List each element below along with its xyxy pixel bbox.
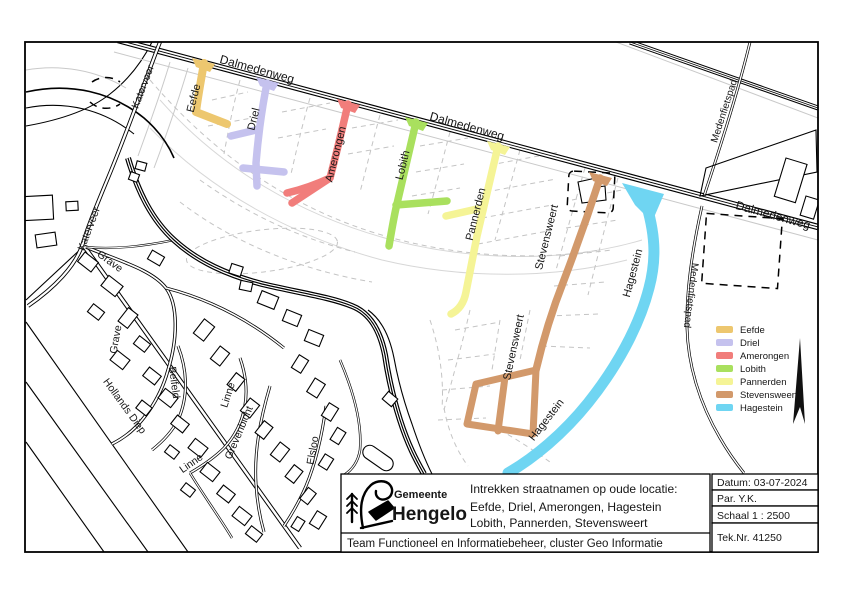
title-block-footer: Team Functioneel en Informatiebeheer, cl… [347, 538, 663, 550]
legend-label-amerongen: Amerongen [740, 351, 789, 362]
logo-hengelo-text: Hengelo [392, 504, 467, 525]
title-line-1: Intrekken straatnamen op oude locatie: [470, 482, 677, 496]
legend-label-pannerden: Pannerden [740, 377, 786, 388]
legend-label-hagestein: Hagestein [740, 403, 783, 414]
title-line-3: Lobith, Pannerden, Stevensweert [470, 516, 648, 530]
teknr-field: Tek.Nr. 41250 [717, 532, 782, 544]
map-drawing-page: Dalmedenweg Dalmedenweg Dalmedenweg Kate… [0, 0, 842, 595]
legend-label-eefde: Eefde [740, 325, 765, 336]
paraaf-field: Par. Y.K. [717, 493, 757, 505]
title-line-2: Eefde, Driel, Amerongen, Hagestein [470, 500, 661, 514]
title-block: Gemeente Hengelo Intrekken straatnamen o… [341, 474, 818, 552]
legend-label-stevensweert: Stevensweert [740, 390, 798, 401]
legend-label-driel: Driel [740, 338, 760, 349]
legend-swatch-hagestein [716, 404, 733, 411]
map-canvas: Dalmedenweg Dalmedenweg Dalmedenweg Kate… [0, 0, 842, 595]
legend-swatch-lobith [716, 365, 733, 372]
logo-gemeente-text: Gemeente [394, 489, 447, 501]
legend-swatch-stevensweert [716, 391, 733, 398]
legend-label-lobith: Lobith [740, 364, 766, 375]
legend-swatch-pannerden [716, 378, 733, 385]
schaal-field: Schaal 1 : 2500 [717, 510, 790, 522]
datum-field: Datum: 03-07-2024 [717, 477, 808, 489]
legend-swatch-driel [716, 339, 733, 346]
legend-swatch-amerongen [716, 352, 733, 359]
legend-swatch-eefde [716, 326, 733, 333]
